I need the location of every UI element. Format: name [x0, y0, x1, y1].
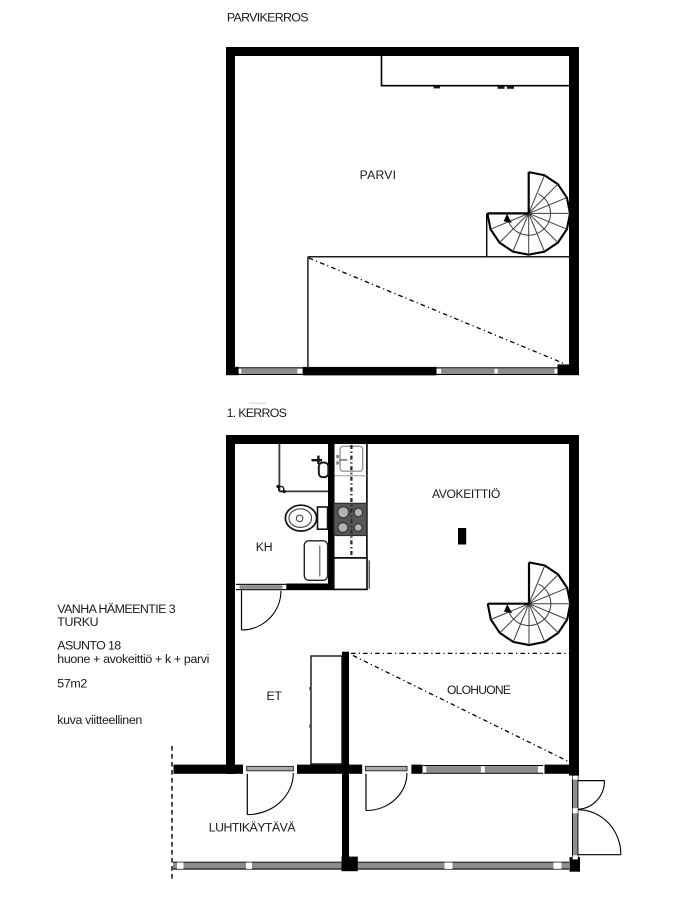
svg-text:1. KERROS: 1. KERROS [227, 406, 287, 420]
svg-text:huone + avokeittiö + k + parvi: huone + avokeittiö + k + parvi [57, 652, 209, 666]
svg-text:OLOHUONE: OLOHUONE [447, 683, 511, 697]
svg-text:kuva viitteellinen: kuva viitteellinen [57, 713, 142, 727]
svg-text:TURKU: TURKU [57, 615, 98, 629]
svg-text:AVOKEITTIÖ: AVOKEITTIÖ [432, 487, 500, 501]
svg-text:KH: KH [256, 540, 272, 554]
svg-text:PARVIKERROS: PARVIKERROS [227, 11, 308, 25]
svg-text:ET: ET [267, 689, 283, 703]
svg-text:ASUNTO 18: ASUNTO 18 [57, 639, 121, 653]
svg-text:57m2: 57m2 [57, 676, 87, 690]
svg-text:LUHTIKÄYTÄVÄ: LUHTIKÄYTÄVÄ [209, 820, 297, 834]
svg-text:PARVI: PARVI [360, 168, 397, 182]
